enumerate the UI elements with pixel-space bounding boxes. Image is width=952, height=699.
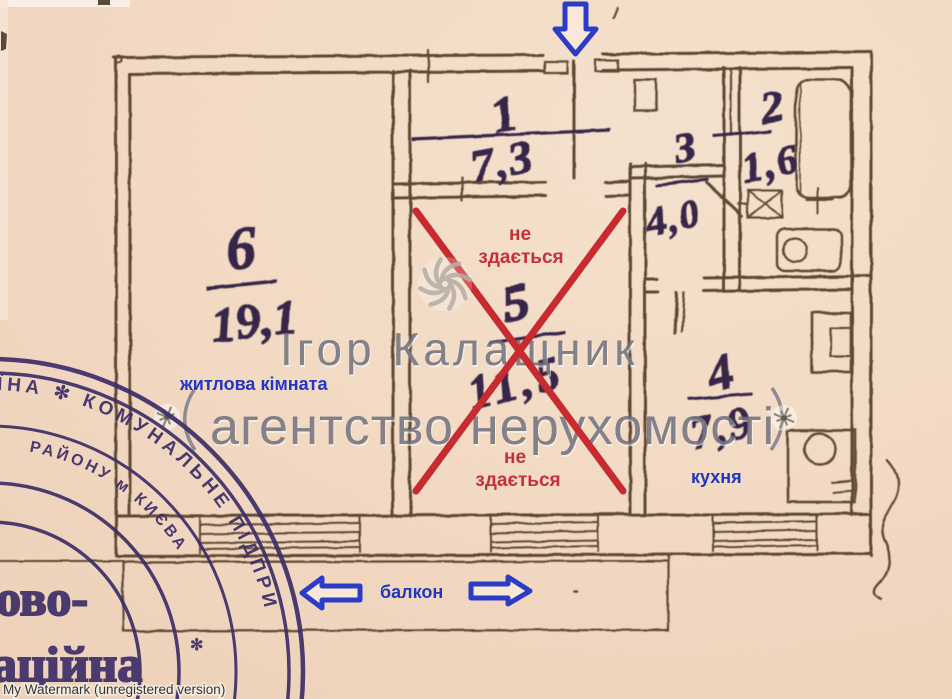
svg-text:не: не — [504, 447, 526, 468]
svg-text:здається: здається — [475, 470, 560, 491]
svg-text:Ігор Калащник: Ігор Калащник — [280, 323, 638, 375]
svg-text:ово-: ово- — [0, 570, 88, 626]
svg-text:житлова кімната: житлова кімната — [179, 374, 328, 394]
svg-text:My Watermark (unregistered ver: My Watermark (unregistered version) — [3, 682, 225, 697]
svg-text:✻: ✻ — [190, 637, 203, 654]
svg-text:агентство нерухомості: агентство нерухомості — [210, 398, 775, 456]
svg-text:балкон: балкон — [380, 582, 443, 602]
svg-text:здається: здається — [478, 247, 563, 268]
svg-text:не: не — [509, 224, 531, 245]
svg-text:кухня: кухня — [691, 467, 742, 487]
